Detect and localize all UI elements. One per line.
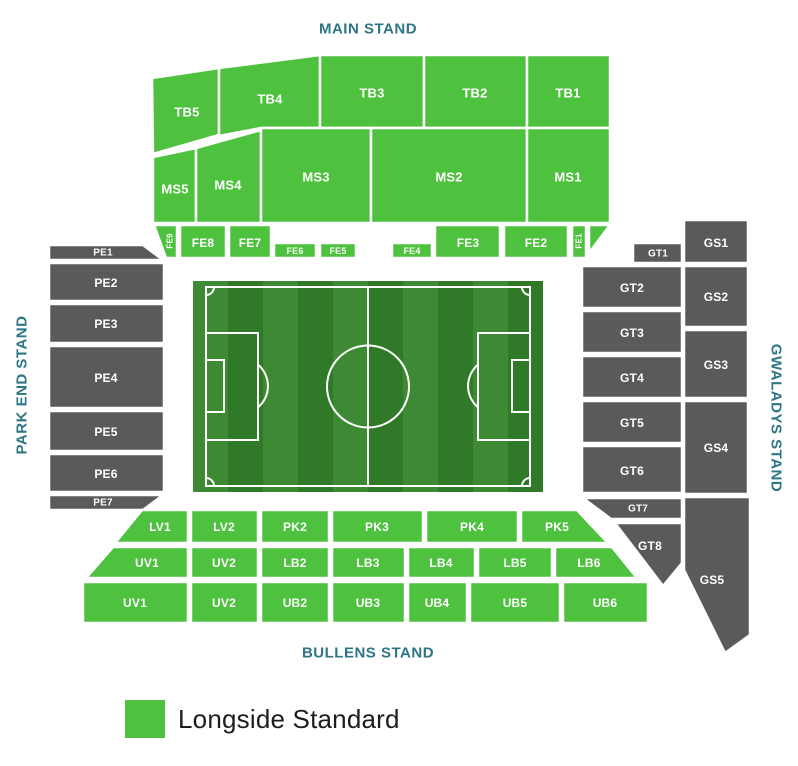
section-label-gt5: GT5 (620, 416, 644, 430)
section-label-fe6: FE6 (286, 246, 303, 256)
section-label-pe3: PE3 (94, 317, 117, 331)
section-label-pe6: PE6 (94, 467, 117, 481)
section-label-ms3: MS3 (302, 170, 329, 185)
section-label-uv2-low: UV2 (212, 596, 236, 610)
section-label-fe1: FE1 (575, 233, 584, 249)
section-label-lv2: LV2 (213, 520, 235, 534)
section-label-fe3: FE3 (457, 236, 480, 250)
section-label-ms4: MS4 (214, 178, 242, 193)
section-label-gt6: GT6 (620, 464, 644, 478)
section-label-ub5: UB5 (503, 596, 528, 610)
section-label-ms2: MS2 (435, 170, 462, 185)
section-label-lb4: LB4 (429, 556, 452, 570)
section-label-fe2: FE2 (525, 236, 548, 250)
section-label-pe2: PE2 (94, 276, 117, 290)
section-label-fe5: FE5 (329, 246, 346, 256)
section-label-pk5: PK5 (545, 520, 569, 534)
section-label-ub4: UB4 (425, 596, 450, 610)
pitch-grass-stripe (193, 281, 228, 492)
section-label-pk3: PK3 (365, 520, 389, 534)
section-label-pk2: PK2 (283, 520, 307, 534)
section-label-gs5: GS5 (700, 573, 725, 587)
section-label-pk4: PK4 (460, 520, 484, 534)
section-label-gt3: GT3 (620, 326, 644, 340)
section-label-uv1-low: UV1 (123, 596, 147, 610)
section-label-ub6: UB6 (593, 596, 618, 610)
section-label-lb5: LB5 (503, 556, 526, 570)
section-label-gt7: GT7 (628, 504, 648, 515)
section-label-fe8: FE8 (192, 236, 215, 250)
section-label-fe7: FE7 (239, 236, 262, 250)
section-label-ub2: UB2 (283, 596, 308, 610)
section-label-gs3: GS3 (704, 358, 729, 372)
section-ms4[interactable] (196, 130, 261, 223)
legend: Longside Standard (125, 700, 400, 738)
section-label-pe7: PE7 (93, 498, 113, 509)
section-label-tb2: TB2 (462, 86, 487, 101)
stadium-seat-map: MAIN STAND PARK END STAND GWALADYS STAND… (0, 0, 798, 766)
section-label-lb2: LB2 (283, 556, 306, 570)
legend-swatch-longside-standard (125, 700, 165, 738)
section-label-tb1: TB1 (555, 86, 580, 101)
legend-label: Longside Standard (178, 704, 400, 735)
section-label-ms5: MS5 (161, 182, 188, 197)
pitch-grass-stripe (508, 281, 543, 492)
pitch-grass-stripe (333, 281, 368, 492)
section-label-gs1: GS1 (704, 236, 729, 250)
section-label-gs2: GS2 (704, 290, 729, 304)
seat-map-svg: TB5TB4TB3TB2TB1MS5MS4MS3MS2MS1FE9FE8FE7F… (0, 0, 798, 766)
section-label-tb4: TB4 (257, 92, 283, 107)
section-label-pe5: PE5 (94, 425, 117, 439)
section-label-uv1-mid: UV1 (135, 556, 159, 570)
football-pitch (193, 281, 543, 492)
section-label-gt2: GT2 (620, 281, 644, 295)
section-label-gt1: GT1 (648, 249, 668, 260)
section-label-lv1: LV1 (149, 520, 171, 534)
section-label-pe1: PE1 (93, 248, 113, 259)
section-label-ub3: UB3 (356, 596, 381, 610)
section-label-lb6: LB6 (577, 556, 600, 570)
section-label-gt4: GT4 (620, 371, 644, 385)
section-label-gs4: GS4 (704, 441, 729, 455)
pitch-grass-stripe (368, 281, 403, 492)
section-label-fe4: FE4 (403, 246, 420, 256)
section-label-pe4: PE4 (94, 371, 117, 385)
section-label-fe9: FE9 (166, 233, 175, 249)
section-label-lb3: LB3 (356, 556, 379, 570)
section-label-ms1: MS1 (554, 170, 581, 185)
main-stand-corner-bevel (589, 225, 610, 253)
section-label-tb3: TB3 (359, 86, 384, 101)
section-label-gt8: GT8 (638, 539, 662, 553)
section-label-uv2-mid: UV2 (212, 556, 236, 570)
section-label-tb5: TB5 (174, 105, 199, 120)
